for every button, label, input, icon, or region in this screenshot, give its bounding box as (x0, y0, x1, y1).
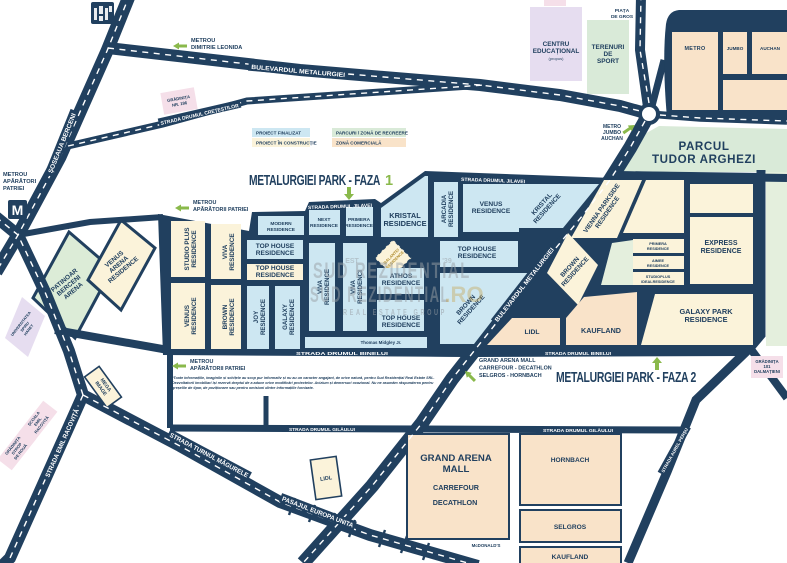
svg-text:PROIECT FINALIZAT: PROIECT FINALIZAT (256, 131, 301, 136)
svg-text:KAUFLAND: KAUFLAND (552, 554, 589, 561)
svg-text:Thomas Midgley Jr.: Thomas Midgley Jr. (361, 340, 402, 345)
svg-text:METROUAPĂRĂTORII PATRIEI: METROUAPĂRĂTORII PATRIEI (193, 200, 249, 213)
svg-text:STRADA AUREL PERȘU: STRADA AUREL PERȘU (660, 427, 689, 473)
svg-text:1: 1 (385, 173, 393, 189)
svg-text:KAUFLAND: KAUFLAND (581, 326, 621, 335)
svg-text:SUD REZIDENTIAL: SUD REZIDENTIAL (310, 282, 450, 307)
svg-text:PIAȚADE GROS: PIAȚADE GROS (611, 8, 634, 20)
svg-text:STRADA TURNUL MĂGURELE: STRADA TURNUL MĂGURELE (168, 430, 251, 480)
svg-text:'39: '39 (442, 258, 452, 265)
svg-text:PROIECT ÎN CONSTRUCȚIE: PROIECT ÎN CONSTRUCȚIE (256, 139, 317, 146)
svg-text:GALAXYRESIDENCE: GALAXYRESIDENCE (282, 299, 296, 335)
svg-text:METROJUMBOAUCHAN: METROJUMBOAUCHAN (601, 124, 623, 142)
svg-text:REAL ESTATE GROUP: REAL ESTATE GROUP (343, 307, 447, 317)
svg-text:HORNBACH: HORNBACH (551, 457, 590, 464)
svg-text:STRADA DRUMUL GILĂULUI: STRADA DRUMUL GILĂULUI (543, 427, 614, 434)
svg-text:METALURGIEI PARK - FAZA 2: METALURGIEI PARK - FAZA 2 (556, 370, 696, 386)
svg-text:METALURGIEI PARK - FAZA: METALURGIEI PARK - FAZA (249, 173, 381, 189)
svg-text:KRISTALRESIDENCE: KRISTALRESIDENCE (383, 211, 426, 228)
svg-text:TOP HOUSERESIDENCE: TOP HOUSERESIDENCE (382, 315, 421, 329)
svg-text:M: M (12, 202, 24, 218)
svg-text:.RO: .RO (444, 282, 483, 307)
svg-text:PARCURI / ZONĂ DE RECREERE: PARCURI / ZONĂ DE RECREERE (336, 130, 408, 136)
svg-text:greșelile de tipar, de pozițio: greșelile de tipar, de poziționare sau p… (171, 386, 314, 390)
svg-text:TOP HOUSERESIDENCE: TOP HOUSERESIDENCE (256, 265, 295, 279)
svg-text:METROUAPĂRĂTORII PATRIEI: METROUAPĂRĂTORII PATRIEI (190, 359, 246, 372)
svg-text:DECATHLON: DECATHLON (433, 498, 478, 507)
svg-text:SELGROS: SELGROS (554, 524, 587, 531)
svg-text:STRADA DRUMUL GILĂULUI: STRADA DRUMUL GILĂULUI (289, 426, 356, 433)
svg-text:AUCHAN: AUCHAN (760, 46, 781, 51)
svg-text:McDONALD'S: McDONALD'S (472, 543, 501, 548)
svg-text:METRO: METRO (685, 46, 706, 52)
svg-text:ZONĂ COMERCIALĂ: ZONĂ COMERCIALĂ (336, 140, 382, 146)
svg-text:TOP HOUSERESIDENCE: TOP HOUSERESIDENCE (256, 243, 295, 257)
svg-text:CARREFOUR: CARREFOUR (433, 483, 480, 492)
svg-text:EST: EST (345, 258, 359, 265)
svg-text:Dezvoltatorii imobiliari își r: Dezvoltatorii imobiliari își rezervă dre… (172, 381, 434, 385)
svg-text:JUMBO: JUMBO (727, 46, 744, 51)
svg-text:STRADA DRUMUL BINELUI: STRADA DRUMUL BINELUI (545, 351, 612, 357)
svg-text:ARCADIARESIDENCE: ARCADIARESIDENCE (441, 191, 455, 227)
svg-text:GALAXY PARKRESIDENCE: GALAXY PARKRESIDENCE (679, 307, 733, 324)
svg-text:STUDIO PLUSRESIDENCE: STUDIO PLUSRESIDENCE (184, 227, 198, 271)
svg-text:*Toate informațiile, imaginile: *Toate informațiile, imaginile și schițe… (172, 376, 435, 380)
svg-text:PRIMERARESIDENCE: PRIMERARESIDENCE (647, 242, 670, 251)
svg-text:GRAND ARENA MALLCARREFOUR - DE: GRAND ARENA MALLCARREFOUR - DECATHLONSEL… (479, 358, 552, 379)
svg-text:METROUAPĂRĂTORIPATRIEI: METROUAPĂRĂTORIPATRIEI (3, 172, 37, 192)
svg-text:LIDL: LIDL (524, 329, 539, 336)
svg-text:METROUDIMITRIE LEONIDA: METROUDIMITRIE LEONIDA (191, 38, 242, 51)
svg-text:EXPRESSRESIDENCE: EXPRESSRESIDENCE (701, 240, 742, 255)
svg-text:STUDIOPLUSIDEALRESIDENCE: STUDIOPLUSIDEALRESIDENCE (641, 275, 675, 284)
svg-text:STRADA DRUMUL BINELUI: STRADA DRUMUL BINELUI (296, 351, 389, 357)
